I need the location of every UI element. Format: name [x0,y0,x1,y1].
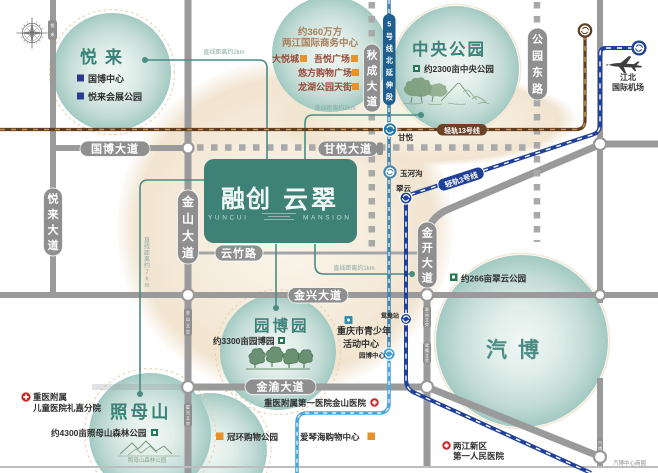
svg-text:开: 开 [422,241,433,254]
svg-text:距: 距 [144,250,150,257]
svg-text:国博大道: 国博大道 [91,142,139,156]
svg-text:轻轨13号线: 轻轨13号线 [444,126,480,135]
svg-text:金兴大道: 金兴大道 [293,288,342,302]
svg-text:冠环购物公园: 冠环购物公园 [227,432,278,442]
svg-text:MANSION: MANSION [303,215,352,222]
svg-text:路: 路 [532,82,544,96]
svg-text:活动中心: 活动中心 [343,338,379,349]
svg-text:园: 园 [532,50,543,63]
svg-text:江北: 江北 [620,72,636,82]
svg-text:段: 段 [386,93,394,102]
svg-text:大: 大 [422,255,433,269]
svg-text:爱琴海购物中心: 爱琴海购物中心 [300,432,360,442]
svg-text:大: 大 [367,80,378,93]
svg-text:云竹路: 云竹路 [221,246,257,260]
svg-text:交: 交 [425,321,429,328]
svg-text:线: 线 [386,44,394,53]
svg-text:金: 金 [181,194,195,209]
svg-text:5: 5 [387,20,391,29]
svg-text:重医附属第一医院金山医院: 重医附属第一医院金山医院 [264,398,367,408]
svg-text:道: 道 [48,238,59,252]
svg-text:道: 道 [422,270,433,284]
svg-text:园博中心: 园博中心 [359,351,386,360]
svg-text:东: 东 [532,65,543,79]
svg-text:金: 金 [421,225,434,239]
svg-text:延: 延 [385,68,394,77]
svg-text:约2300亩中央公园: 约2300亩中央公园 [424,64,494,74]
svg-text:悦来: 悦来 [80,47,130,67]
svg-text:山: 山 [182,211,194,226]
svg-text:秋: 秋 [367,49,378,62]
svg-text:交: 交 [425,357,429,364]
svg-text:融创: 融创 [221,186,271,213]
svg-text:两江新区: 两江新区 [453,441,488,451]
svg-text:m: m [145,283,150,289]
svg-text:直: 直 [144,236,150,244]
svg-text:YUNCUI: YUNCUI [208,215,249,222]
svg-text:山: 山 [186,315,190,322]
svg-text:立: 立 [186,414,190,420]
svg-text:约266亩翠云公园: 约266亩翠云公园 [461,274,526,284]
svg-text:交: 交 [186,420,190,427]
svg-text:甘悦: 甘悦 [398,132,413,142]
svg-text:金渝大道: 金渝大道 [256,380,305,394]
svg-text:第一人民医院: 第一人民医院 [453,451,505,461]
svg-text:约4300亩照母山森林公园: 约4300亩照母山森林公园 [51,428,146,438]
svg-text:汽博中心商圈: 汽博中心商圈 [613,459,647,467]
svg-text:龙湖公园天街: 龙湖公园天街 [297,81,352,92]
svg-text:汽博: 汽博 [486,338,550,362]
svg-text:国际机场: 国际机场 [612,82,644,92]
svg-text:吾悦广场: 吾悦广场 [314,53,350,64]
svg-text:来: 来 [47,207,60,221]
svg-text:重医附属: 重医附属 [33,392,67,402]
svg-text:照母山: 照母山 [110,402,172,422]
svg-text:云翠: 云翠 [283,186,339,214]
svg-text:北: 北 [386,56,394,65]
svg-text:成: 成 [367,64,378,77]
svg-text:约360万方: 约360万方 [298,26,343,38]
svg-text:公: 公 [532,33,543,46]
svg-text:翠云: 翠云 [396,183,411,193]
svg-text:中央公园: 中央公园 [412,39,486,59]
svg-text:悠方购物广场: 悠方购物广场 [297,67,352,78]
svg-text:鸳鸯站: 鸳鸯站 [381,312,399,320]
svg-text:直线距离约1km: 直线距离约1km [333,264,374,272]
svg-text:线: 线 [144,242,150,250]
svg-text:照母山森林公园: 照母山森林公园 [128,456,167,464]
svg-text:约: 约 [144,262,150,270]
svg-text:交: 交 [186,328,190,335]
svg-text:两江国际商务中心: 两江国际商务中心 [282,37,359,49]
svg-text:号: 号 [386,32,393,41]
svg-text:国博中心: 国博中心 [88,73,124,84]
svg-text:立: 立 [186,322,190,328]
svg-text:大悦城: 大悦城 [272,53,299,64]
svg-text:大: 大 [182,228,194,243]
svg-text:园博园: 园博园 [254,316,310,335]
svg-text:直线距离约2km: 直线距离约2km [203,48,244,56]
svg-text:儿童医院礼嘉分院: 儿童医院礼嘉分院 [32,403,102,413]
svg-text:玉河沟: 玉河沟 [400,168,423,178]
svg-text:星: 星 [186,404,190,409]
svg-text:道: 道 [367,95,378,108]
svg-text:伸: 伸 [385,80,393,89]
svg-text:悦来会展公园: 悦来会展公园 [88,91,142,102]
svg-text:约3300亩园博园: 约3300亩园博园 [213,336,274,346]
svg-text:道: 道 [182,245,194,260]
svg-text:离: 离 [144,255,150,263]
svg-text:直线距离约2km: 直线距离约2km [314,104,355,112]
svg-text:甘悦大道: 甘悦大道 [324,142,372,156]
svg-text:悦: 悦 [48,192,59,206]
svg-text:重庆市青少年: 重庆市青少年 [337,325,391,336]
svg-text:大: 大 [48,223,59,237]
